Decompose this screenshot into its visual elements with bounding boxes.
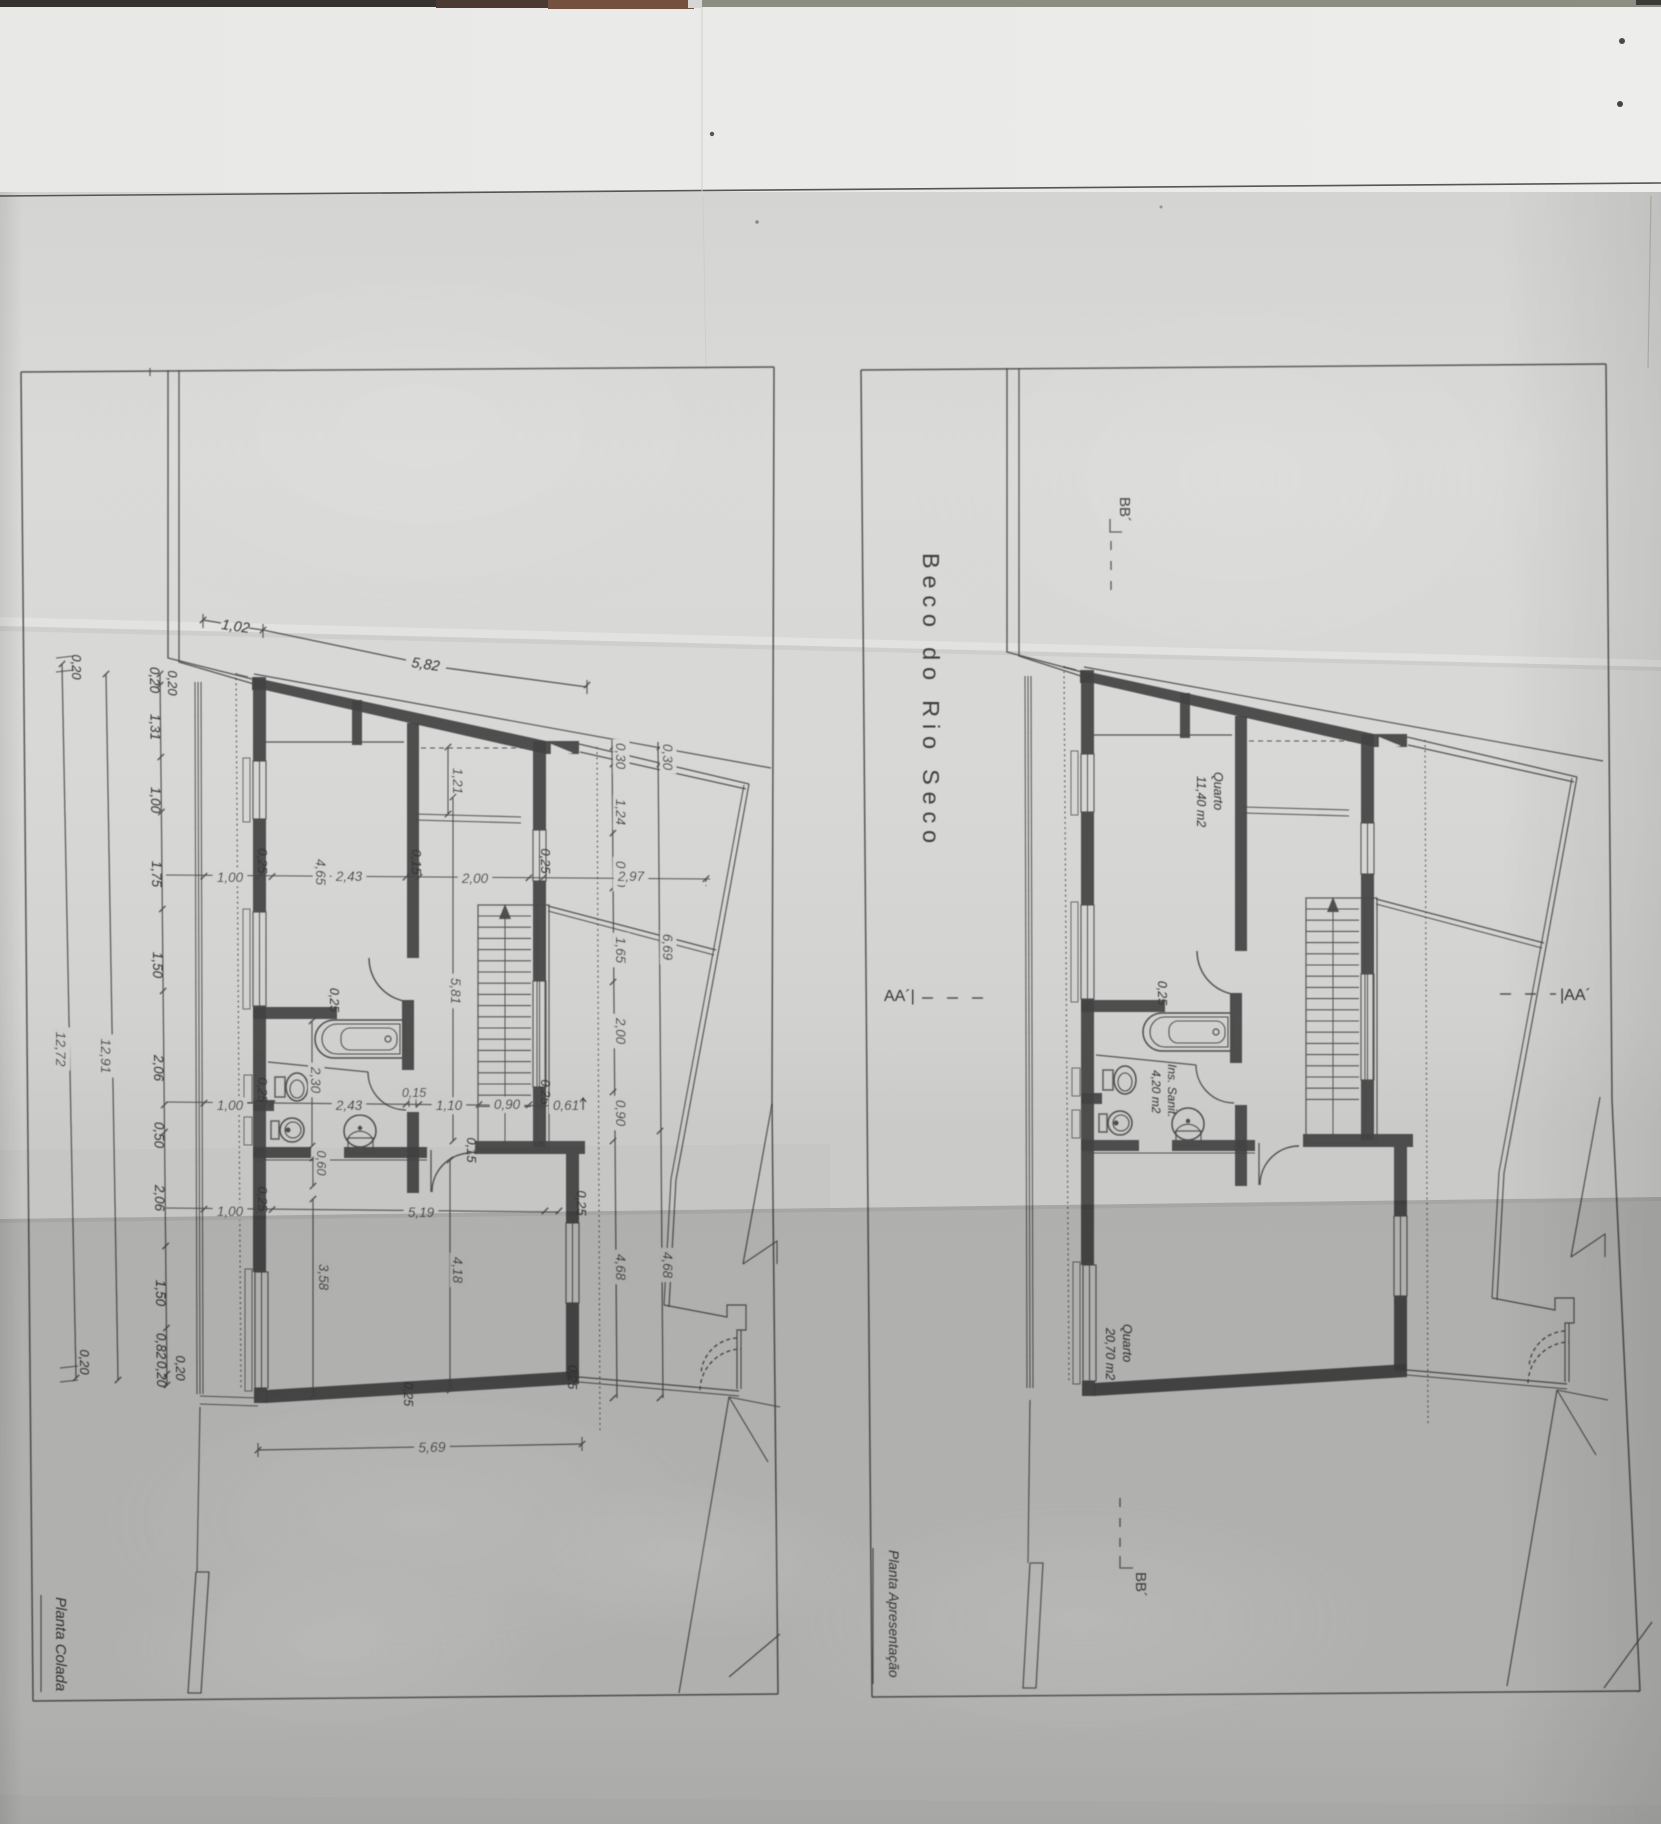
svg-text:2,06: 2,06 xyxy=(151,1054,166,1082)
svg-text:6,69: 6,69 xyxy=(660,934,675,961)
svg-text:1,00: 1,00 xyxy=(217,1098,244,1113)
svg-text:2,43: 2,43 xyxy=(335,869,363,884)
svg-text:2,00: 2,00 xyxy=(461,871,489,886)
svg-text:11,40 m2: 11,40 m2 xyxy=(1194,776,1208,827)
svg-text:0,15: 0,15 xyxy=(409,849,424,875)
svg-text:0,25: 0,25 xyxy=(255,1077,270,1103)
svg-text:5,81: 5,81 xyxy=(448,978,463,1004)
svg-text:12,72: 12,72 xyxy=(53,1031,69,1066)
svg-text:1,31: 1,31 xyxy=(148,714,163,740)
svg-text:0,25: 0,25 xyxy=(327,988,341,1012)
svg-text:0,25: 0,25 xyxy=(538,848,553,874)
svg-text:0,15: 0,15 xyxy=(402,1086,426,1100)
svg-text:0,50: 0,50 xyxy=(152,1122,167,1149)
svg-text:0,30: 0,30 xyxy=(613,743,628,770)
svg-text:1,00: 1,00 xyxy=(217,870,244,885)
svg-text:0,20: 0,20 xyxy=(165,670,180,696)
svg-text:0,20: 0,20 xyxy=(69,654,84,680)
svg-text:2,30: 2,30 xyxy=(308,1066,323,1094)
svg-text:4,20 m2: 4,20 m2 xyxy=(1149,1070,1163,1114)
svg-text:1,24: 1,24 xyxy=(613,799,628,825)
svg-text:4,65: 4,65 xyxy=(313,859,328,886)
svg-text:AA´|: AA´| xyxy=(884,988,915,1005)
svg-text:1,65: 1,65 xyxy=(613,937,628,964)
svg-text:1,21: 1,21 xyxy=(450,768,465,794)
svg-text:0,30: 0,30 xyxy=(660,744,675,771)
svg-text:Quarto: Quarto xyxy=(1211,772,1225,810)
svg-text:2,00: 2,00 xyxy=(613,1017,628,1045)
svg-text:0,25: 0,25 xyxy=(255,848,270,874)
svg-text:Ins. Sanit.: Ins. Sanit. xyxy=(1165,1064,1179,1117)
svg-text:1,10: 1,10 xyxy=(436,1098,463,1113)
svg-text:Beco do Rio Seco: Beco do Rio Seco xyxy=(918,553,944,850)
svg-text:1,75: 1,75 xyxy=(149,861,164,888)
svg-text:2,43: 2,43 xyxy=(335,1098,363,1113)
svg-text:0,61: 0,61 xyxy=(553,1098,579,1113)
svg-text:12,91: 12,91 xyxy=(98,1038,114,1073)
svg-text:0,90: 0,90 xyxy=(613,1100,628,1127)
svg-text:0,90: 0,90 xyxy=(494,1097,521,1112)
svg-text:0,25: 0,25 xyxy=(1155,981,1169,1005)
svg-text:1,50: 1,50 xyxy=(150,952,165,979)
svg-text:2,97: 2,97 xyxy=(617,869,645,884)
svg-text:0,20: 0,20 xyxy=(147,667,162,694)
svg-text:1,00: 1,00 xyxy=(148,787,163,814)
